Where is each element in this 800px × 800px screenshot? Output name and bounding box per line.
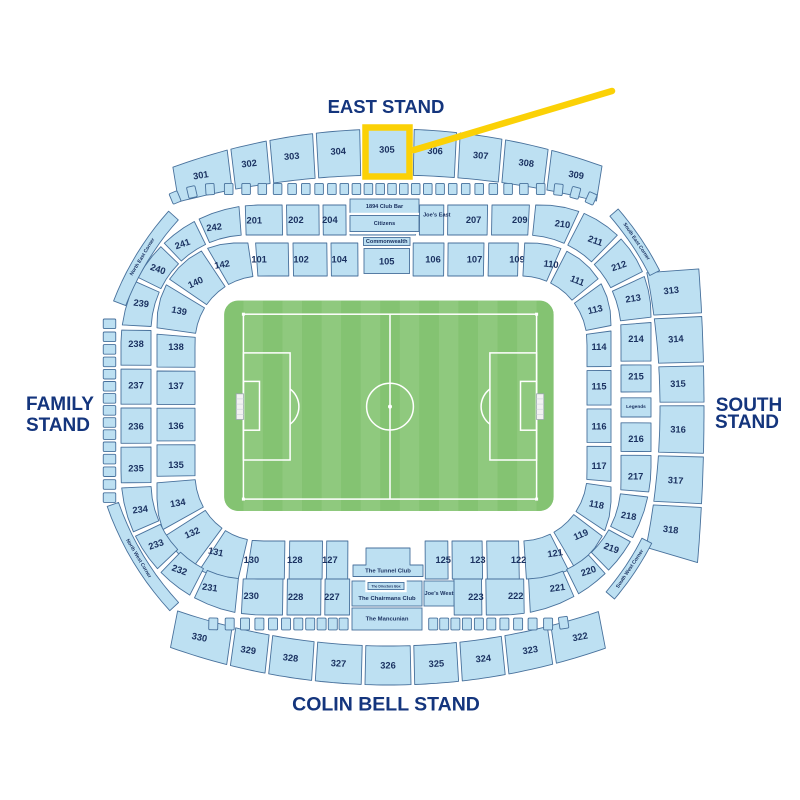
svg-text:237: 237 xyxy=(128,380,144,390)
svg-text:105: 105 xyxy=(379,257,395,267)
svg-text:227: 227 xyxy=(324,592,340,602)
svg-text:Commonwealth: Commonwealth xyxy=(366,239,408,245)
svg-text:201: 201 xyxy=(247,216,263,226)
svg-text:216: 216 xyxy=(628,434,644,444)
svg-text:The Mancunian: The Mancunian xyxy=(366,617,409,623)
svg-text:305: 305 xyxy=(379,145,395,155)
svg-text:110: 110 xyxy=(543,258,559,270)
svg-text:317: 317 xyxy=(668,475,684,486)
svg-text:303: 303 xyxy=(284,151,300,162)
svg-text:304: 304 xyxy=(330,146,347,157)
svg-text:Citizens: Citizens xyxy=(374,221,395,227)
svg-text:302: 302 xyxy=(241,158,258,170)
svg-text:223: 223 xyxy=(468,592,484,602)
svg-text:STAND: STAND xyxy=(26,415,90,436)
svg-text:221: 221 xyxy=(549,582,566,594)
svg-text:138: 138 xyxy=(168,342,184,352)
svg-text:117: 117 xyxy=(592,461,607,471)
svg-text:102: 102 xyxy=(293,255,309,265)
svg-text:107: 107 xyxy=(467,255,483,265)
svg-text:EAST STAND: EAST STAND xyxy=(328,96,445,117)
svg-text:327: 327 xyxy=(330,658,346,669)
svg-text:115: 115 xyxy=(592,382,607,392)
svg-text:326: 326 xyxy=(380,660,396,670)
svg-text:128: 128 xyxy=(287,555,303,565)
svg-text:1894 Club Bar: 1894 Club Bar xyxy=(366,204,404,210)
svg-text:318: 318 xyxy=(662,524,679,536)
svg-text:210: 210 xyxy=(554,218,571,230)
svg-text:222: 222 xyxy=(508,591,524,601)
svg-text:123: 123 xyxy=(470,555,486,565)
svg-text:Legends: Legends xyxy=(626,404,646,410)
svg-text:242: 242 xyxy=(206,221,223,233)
svg-text:The Directors Box: The Directors Box xyxy=(371,584,400,588)
svg-text:217: 217 xyxy=(628,472,644,482)
svg-text:238: 238 xyxy=(128,339,144,349)
svg-text:313: 313 xyxy=(663,285,680,297)
svg-text:135: 135 xyxy=(168,460,184,470)
svg-text:106: 106 xyxy=(425,255,441,265)
svg-text:236: 236 xyxy=(128,422,144,432)
svg-text:109: 109 xyxy=(509,255,525,265)
svg-text:137: 137 xyxy=(168,381,184,391)
svg-text:The Tunnel Club: The Tunnel Club xyxy=(365,568,411,574)
svg-text:239: 239 xyxy=(133,298,150,310)
svg-text:114: 114 xyxy=(592,342,608,352)
svg-text:125: 125 xyxy=(435,555,451,565)
svg-text:314: 314 xyxy=(668,334,685,345)
svg-text:328: 328 xyxy=(282,652,298,664)
svg-text:325: 325 xyxy=(428,658,444,669)
svg-text:228: 228 xyxy=(288,592,304,602)
svg-text:The Chairmans Club: The Chairmans Club xyxy=(358,596,416,602)
svg-text:122: 122 xyxy=(511,555,527,565)
svg-text:215: 215 xyxy=(628,372,644,382)
svg-text:STAND: STAND xyxy=(715,412,779,433)
svg-text:104: 104 xyxy=(332,255,348,265)
svg-text:FAMILY: FAMILY xyxy=(26,394,94,415)
svg-text:307: 307 xyxy=(473,150,489,161)
svg-text:127: 127 xyxy=(322,555,338,565)
svg-text:324: 324 xyxy=(475,653,492,665)
svg-text:235: 235 xyxy=(128,463,144,473)
svg-text:204: 204 xyxy=(322,215,338,225)
svg-text:101: 101 xyxy=(251,255,267,265)
svg-text:130: 130 xyxy=(244,555,260,565)
svg-text:136: 136 xyxy=(168,421,184,431)
svg-text:316: 316 xyxy=(670,424,686,434)
svg-text:209: 209 xyxy=(512,215,528,225)
svg-text:207: 207 xyxy=(466,215,482,225)
svg-text:234: 234 xyxy=(132,504,149,516)
svg-text:202: 202 xyxy=(288,215,304,225)
svg-text:230: 230 xyxy=(243,591,259,601)
svg-text:315: 315 xyxy=(670,379,686,389)
svg-text:COLIN BELL STAND: COLIN BELL STAND xyxy=(292,694,480,716)
svg-text:Joe’s East: Joe’s East xyxy=(423,212,451,218)
svg-text:214: 214 xyxy=(628,334,644,344)
svg-text:Joe’s West: Joe’s West xyxy=(425,591,454,597)
svg-text:308: 308 xyxy=(518,157,535,169)
svg-text:116: 116 xyxy=(592,422,607,432)
